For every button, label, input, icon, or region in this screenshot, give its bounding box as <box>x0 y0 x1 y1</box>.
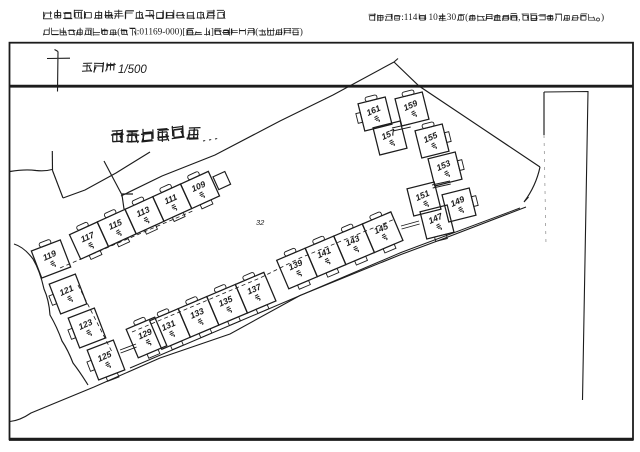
svg-text:(: ( <box>465 12 468 23</box>
svg-text:10: 10 <box>429 13 439 23</box>
svg-text:): ) <box>601 12 604 23</box>
svg-text:,: , <box>518 13 520 23</box>
svg-text::114: :114 <box>401 13 418 23</box>
svg-text:(: ( <box>255 27 258 38</box>
svg-text:]: ] <box>211 28 214 38</box>
svg-text:30: 30 <box>447 13 457 23</box>
svg-text:1/500: 1/500 <box>118 64 147 76</box>
svg-text::01169-000)[: :01169-000)[ <box>137 27 186 38</box>
svg-text:): ) <box>300 27 303 38</box>
svg-text:(: ( <box>117 27 120 38</box>
svg-text:32: 32 <box>256 218 265 227</box>
